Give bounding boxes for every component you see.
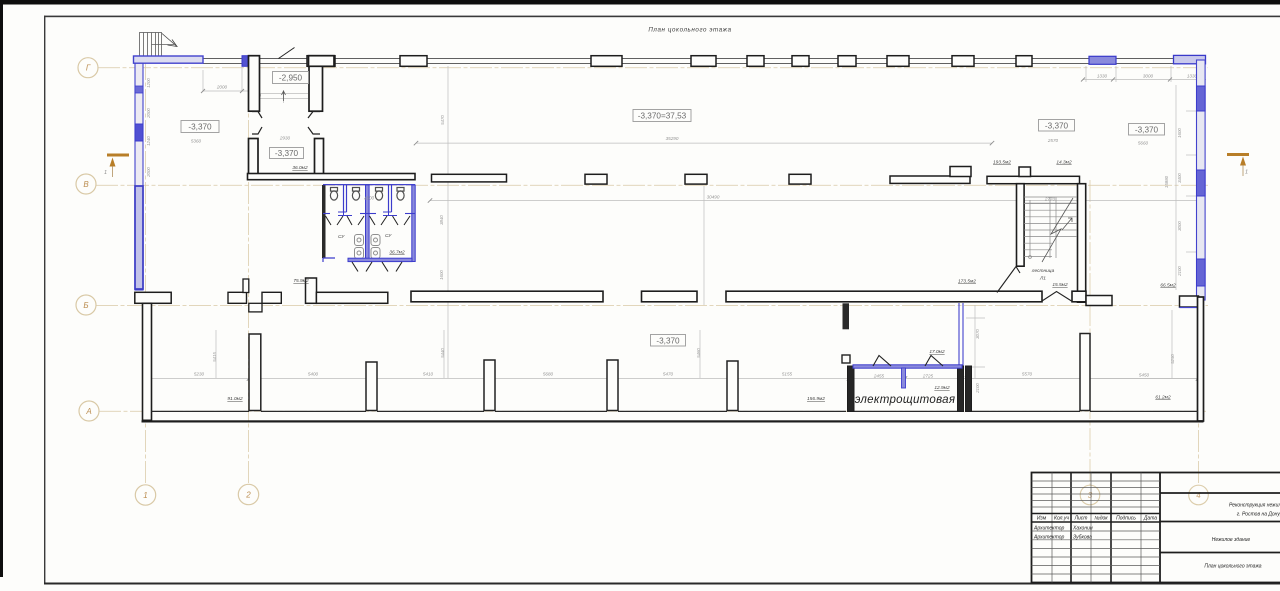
svg-text:2000: 2000	[146, 167, 151, 178]
svg-text:Г: Г	[86, 64, 91, 73]
svg-text:5415: 5415	[212, 352, 217, 362]
svg-text:5570: 5570	[1022, 372, 1033, 377]
svg-text:3000: 3000	[1177, 221, 1182, 231]
svg-text:5360: 5360	[191, 139, 202, 144]
svg-text:3070: 3070	[975, 329, 980, 339]
svg-text:-3,370: -3,370	[1135, 126, 1159, 135]
svg-text:30490: 30490	[707, 195, 720, 200]
svg-text:2000: 2000	[146, 108, 151, 119]
svg-text:Изм: Изм	[1037, 516, 1047, 522]
svg-text:Кол.уч: Кол.уч	[1054, 516, 1069, 522]
svg-text:Л1: Л1	[1039, 276, 1046, 282]
svg-text:1330: 1330	[1097, 74, 1108, 79]
svg-text:1: 1	[1245, 170, 1248, 176]
svg-text:2570: 2570	[1047, 138, 1059, 143]
svg-text:12.9м2: 12.9м2	[934, 385, 950, 391]
svg-text:75.9м2: 75.9м2	[293, 278, 309, 284]
svg-text:Реконструкция нежило: Реконструкция нежило	[1229, 503, 1280, 509]
svg-text:15880: 15880	[1164, 175, 1169, 188]
svg-text:1600: 1600	[439, 270, 444, 280]
svg-text:2930: 2930	[279, 136, 291, 141]
svg-text:Дата: Дата	[1143, 516, 1157, 522]
svg-text:1: 1	[143, 491, 147, 500]
svg-text:План цокольного этажа: План цокольного этажа	[648, 27, 731, 34]
svg-text:г. Ростов на Дону,: г. Ростов на Дону,	[1237, 512, 1280, 518]
svg-text:5230: 5230	[194, 372, 205, 377]
svg-text:Б: Б	[83, 301, 88, 310]
svg-text:2000: 2000	[216, 85, 228, 90]
svg-text:План цокольного этажа: План цокольного этажа	[1204, 564, 1261, 570]
svg-text:5250: 5250	[1170, 354, 1175, 364]
svg-text:5470: 5470	[663, 372, 674, 377]
svg-text:СУ: СУ	[385, 233, 392, 239]
svg-text:5680: 5680	[543, 372, 554, 377]
svg-text:1: 1	[104, 170, 107, 176]
svg-text:1330: 1330	[1187, 74, 1198, 79]
svg-text:В: В	[83, 180, 89, 189]
svg-text:5410: 5410	[423, 372, 434, 377]
svg-text:2725: 2725	[922, 374, 934, 379]
svg-text:Зубкова: Зубкова	[1073, 534, 1092, 540]
svg-text:5440: 5440	[440, 348, 445, 358]
svg-text:3840: 3840	[439, 215, 444, 225]
svg-text:5450: 5450	[1139, 373, 1150, 378]
svg-text:-3,370: -3,370	[188, 123, 212, 132]
svg-text:2100: 2100	[975, 383, 980, 394]
svg-text:5660: 5660	[1138, 141, 1149, 146]
svg-text:Хахонин: Хахонин	[1072, 526, 1093, 532]
svg-text:66.5м2: 66.5м2	[1160, 283, 1176, 289]
svg-text:-3,370: -3,370	[656, 337, 680, 346]
svg-text:3000: 3000	[1143, 74, 1154, 79]
svg-text:СУ: СУ	[338, 234, 345, 240]
svg-text:А: А	[85, 407, 91, 416]
svg-text:156.9м2: 156.9м2	[807, 396, 825, 402]
svg-text:35290: 35290	[666, 136, 679, 141]
svg-text:Подпись: Подпись	[1116, 516, 1136, 522]
svg-text:1240: 1240	[146, 136, 151, 146]
svg-text:5460: 5460	[696, 348, 701, 358]
svg-text:14.3м2: 14.3м2	[1056, 160, 1072, 166]
svg-text:3400: 3400	[1177, 173, 1182, 183]
svg-text:3: 3	[1088, 491, 1093, 500]
svg-text:электрощитовая: электрощитовая	[855, 394, 956, 406]
svg-text:17.0м2: 17.0м2	[929, 349, 945, 355]
svg-text:4500: 4500	[364, 195, 375, 201]
svg-text:36.0м2: 36.0м2	[292, 165, 308, 171]
svg-text:Нежилое здание: Нежилое здание	[1212, 537, 1251, 543]
svg-text:2455: 2455	[873, 374, 885, 379]
svg-text:5470: 5470	[440, 115, 445, 125]
svg-text:-2,950: -2,950	[279, 74, 303, 83]
svg-text:-3,370: -3,370	[275, 149, 299, 158]
svg-text:173.5м2: 173.5м2	[958, 279, 976, 285]
svg-text:Лист: Лист	[1074, 516, 1088, 522]
svg-text:193.5м2: 193.5м2	[993, 160, 1011, 166]
svg-text:36.7м2: 36.7м2	[389, 250, 405, 256]
svg-text:лестница: лестница	[1031, 269, 1055, 274]
svg-text:5400: 5400	[308, 372, 319, 377]
svg-text:1200: 1200	[146, 78, 151, 88]
svg-text:1600: 1600	[1177, 128, 1182, 138]
svg-text:5155: 5155	[782, 372, 793, 377]
svg-text:2100: 2100	[1177, 266, 1182, 277]
svg-text:Архитектор: Архитектор	[1033, 526, 1064, 532]
svg-text:-3,370=37,53: -3,370=37,53	[638, 112, 687, 121]
svg-text:Архитектор: Архитектор	[1033, 534, 1064, 540]
svg-text:15.5м2: 15.5м2	[1052, 282, 1068, 288]
svg-text:61.2м2: 61.2м2	[1155, 395, 1171, 401]
svg-text:91.0м2: 91.0м2	[227, 396, 243, 402]
svg-text:№док: №док	[1094, 516, 1108, 522]
svg-text:2: 2	[245, 491, 251, 500]
svg-text:-3,370: -3,370	[1045, 122, 1069, 131]
